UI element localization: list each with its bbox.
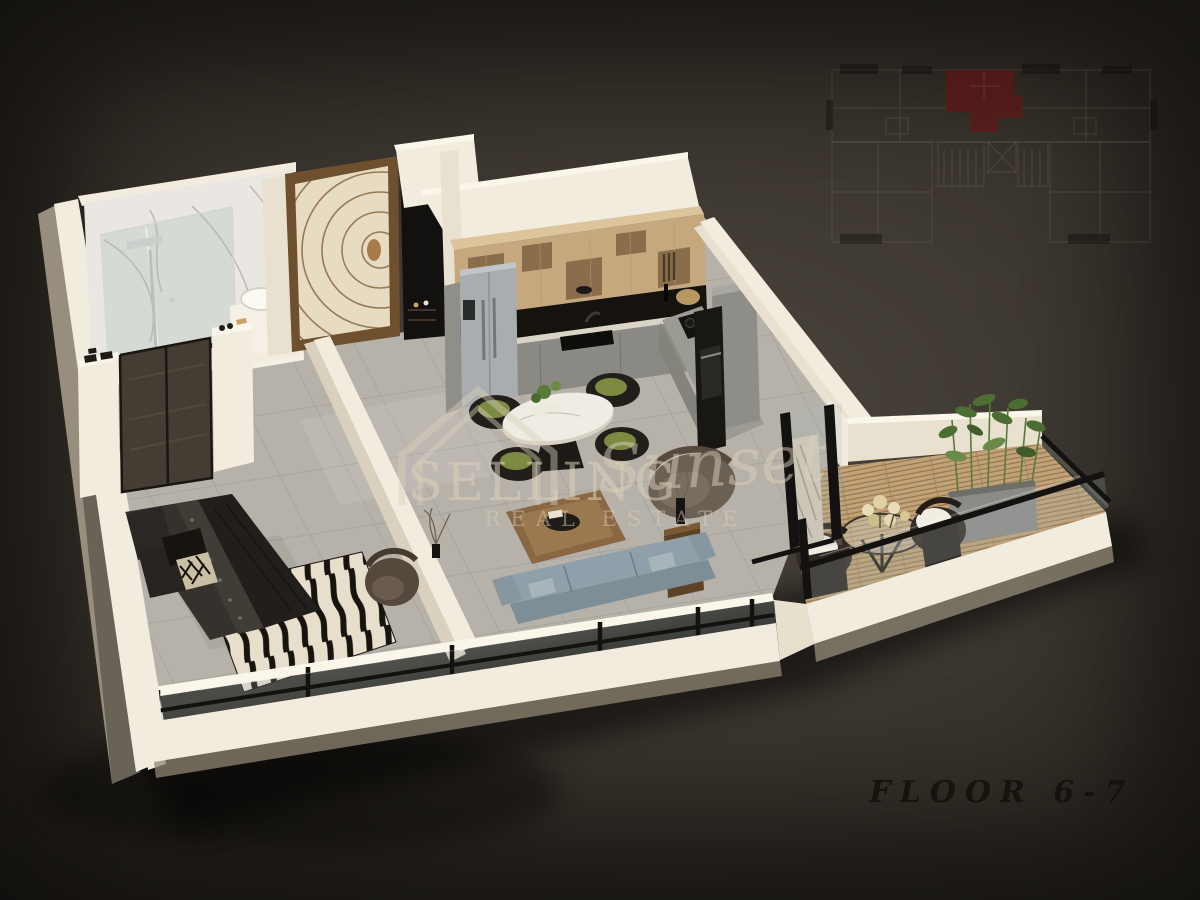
glass-wardrobe-doors <box>120 338 212 492</box>
render-canvas: SELLING Sunset REAL ESTATE FLOOR 6-7 <box>0 0 1200 900</box>
key-plan-highlighted-unit <box>946 70 1022 132</box>
key-plan <box>826 64 1157 244</box>
floorplan-render: SELLING Sunset REAL ESTATE FLOOR 6-7 <box>0 0 1200 900</box>
door-handle <box>367 239 381 261</box>
floor-label: FLOOR 6-7 <box>868 775 1134 810</box>
watermark-tagline: REAL ESTATE <box>485 507 748 531</box>
bedroom-armchair <box>365 551 419 606</box>
watermark-name-script: Sunset <box>595 419 829 508</box>
